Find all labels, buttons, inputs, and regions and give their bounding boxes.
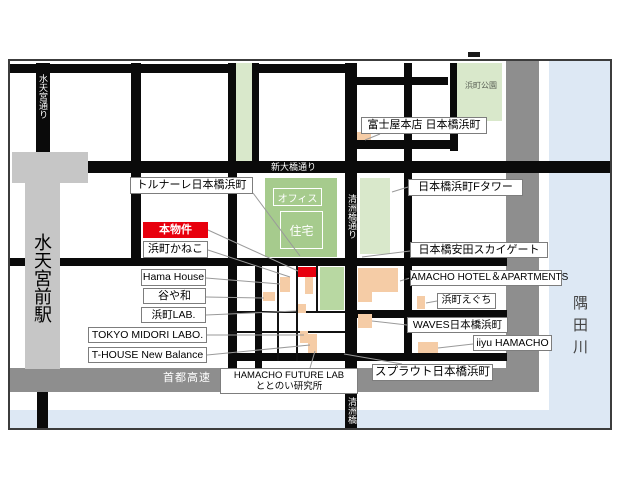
property-building xyxy=(298,267,316,277)
map-label-yasuda-text: 日本橋安田スカイゲート xyxy=(419,245,540,256)
building-small xyxy=(305,276,313,294)
block-divider xyxy=(316,266,318,312)
map-label-iiyu: iiyu HAMACHO xyxy=(473,335,552,351)
building-small xyxy=(308,334,317,353)
sumida-river-label: 隅田川 xyxy=(572,295,587,361)
road-park-south xyxy=(349,140,457,149)
map-label-fujiya: 富士屋本店 日本橋浜町 xyxy=(361,117,487,134)
map-label-waves: WAVES日本橋浜町 xyxy=(407,317,508,333)
map-label-fujiya-text: 富士屋本店 日本橋浜町 xyxy=(367,120,480,131)
block-divider xyxy=(296,266,298,361)
station-shape-horizontal xyxy=(12,152,88,183)
building-small xyxy=(263,292,275,301)
road-bottom-horizontal xyxy=(230,353,507,361)
road-top-right xyxy=(357,77,448,85)
map-label-tornare-text: トルナーレ日本橋浜町 xyxy=(137,180,247,191)
building-iiyu xyxy=(418,342,438,353)
building-small xyxy=(298,304,306,313)
map-label-sprout-text: スプラウト日本橋浜町 xyxy=(375,367,490,379)
map-label-taniyawa: 谷や和 xyxy=(143,288,206,304)
hamacho-park-label: 浜町公園 xyxy=(465,80,497,91)
road-vertical-4b xyxy=(255,258,262,368)
road-top-left xyxy=(10,64,345,73)
block-divider xyxy=(277,266,279,361)
block-divider xyxy=(230,311,345,313)
map-label-taniyawa-text: 谷や和 xyxy=(158,291,191,302)
green-block-2 xyxy=(360,178,390,254)
area-map-page: オフィス 住宅 新大橋通り 水天宮通り 清洲橋通り 清洲橋 首都高速 水天宮前駅… xyxy=(0,0,640,480)
map-label-property-text: 本物件 xyxy=(159,225,192,236)
map-label-hamacho-lab: 浜町LAB. xyxy=(141,307,206,323)
map-label-future-lab-line1: HAMACHO FUTURE LAB xyxy=(234,371,344,381)
sumida-river-bottom xyxy=(10,410,610,428)
green-strip xyxy=(236,63,252,161)
kiyosubashi-bridge-label: 清洲橋 xyxy=(347,397,356,424)
map-label-sprout: スプラウト日本橋浜町 xyxy=(372,364,493,381)
map-label-hamacho-hotel: HAMACHO HOTEL＆APARTMENTS xyxy=(410,270,562,286)
map-label-iiyu-text: iiyu HAMACHO xyxy=(476,338,548,349)
map-label-midori-text: TOKYO MIDORI LABO. xyxy=(92,330,203,341)
road-vertical-4 xyxy=(252,63,259,173)
map-label-hama-house: Hama House xyxy=(141,269,206,286)
zone-residential-box: 住宅 xyxy=(280,211,323,249)
map-label-t-house: T-HOUSE New Balance xyxy=(88,347,207,363)
block-divider xyxy=(230,331,345,333)
map-edge-mark xyxy=(468,52,480,57)
map-label-yasuda-skygate: 日本橋安田スカイゲート xyxy=(410,242,548,258)
map-label-tornare: トルナーレ日本橋浜町 xyxy=(130,177,253,194)
suitengu-dori-road-south xyxy=(37,392,48,428)
map-label-f-tower: 日本橋浜町Fタワー xyxy=(408,179,523,196)
map-label-hamacho-hotel-text: HAMACHO HOTEL＆APARTMENTS xyxy=(404,273,569,283)
neighborhood-map: オフィス 住宅 新大橋通り 水天宮通り 清洲橋通り 清洲橋 首都高速 水天宮前駅… xyxy=(8,59,612,430)
suitengu-dori-label: 水天宮通り xyxy=(38,74,47,119)
road-vertical-2 xyxy=(131,63,141,266)
map-label-future-lab-line2: ととのい研究所 xyxy=(256,382,322,392)
hamacho-park-area xyxy=(457,63,502,121)
shuto-expressway-label: 首都高速 xyxy=(163,373,211,384)
station-name-label: 水天宮前駅 xyxy=(33,233,51,323)
sumida-river-right xyxy=(549,61,610,428)
zone-residential-label: 住宅 xyxy=(289,222,313,239)
building-hamacho-hotel xyxy=(358,268,398,292)
map-label-kaneko-text: 浜町かねこ xyxy=(148,244,203,255)
map-label-waves-text: WAVES日本橋浜町 xyxy=(413,320,502,331)
green-block-small xyxy=(320,267,344,310)
building-hamacho-hotel-annex xyxy=(358,292,372,302)
map-label-kaneko: 浜町かねこ xyxy=(143,241,208,258)
building-small xyxy=(300,331,308,343)
zone-office-box: オフィス xyxy=(273,188,322,206)
map-label-tokyo-midori-labo: TOKYO MIDORI LABO. xyxy=(88,327,207,343)
map-label-f-tower-text: 日本橋浜町Fタワー xyxy=(418,182,513,193)
map-label-hama-house-text: Hama House xyxy=(143,272,204,283)
building-eguchi xyxy=(417,296,425,309)
map-label-t-house-text: T-HOUSE New Balance xyxy=(92,350,203,361)
building-waves xyxy=(358,314,372,328)
shin-ohashi-dori-label: 新大橋通り xyxy=(271,163,316,172)
map-label-eguchi: 浜町えぐち xyxy=(437,293,496,309)
zone-office-label: オフィス xyxy=(278,190,318,205)
map-label-eguchi-text: 浜町えぐち xyxy=(442,296,492,306)
map-label-property: 本物件 xyxy=(143,222,208,238)
map-label-future-lab: HAMACHO FUTURE LAB ととのい研究所 xyxy=(220,368,358,394)
building-small xyxy=(280,277,290,292)
map-label-hamacho-lab-text: 浜町LAB. xyxy=(152,310,196,321)
kiyosubashi-dori-label: 清洲橋通り xyxy=(347,194,356,239)
